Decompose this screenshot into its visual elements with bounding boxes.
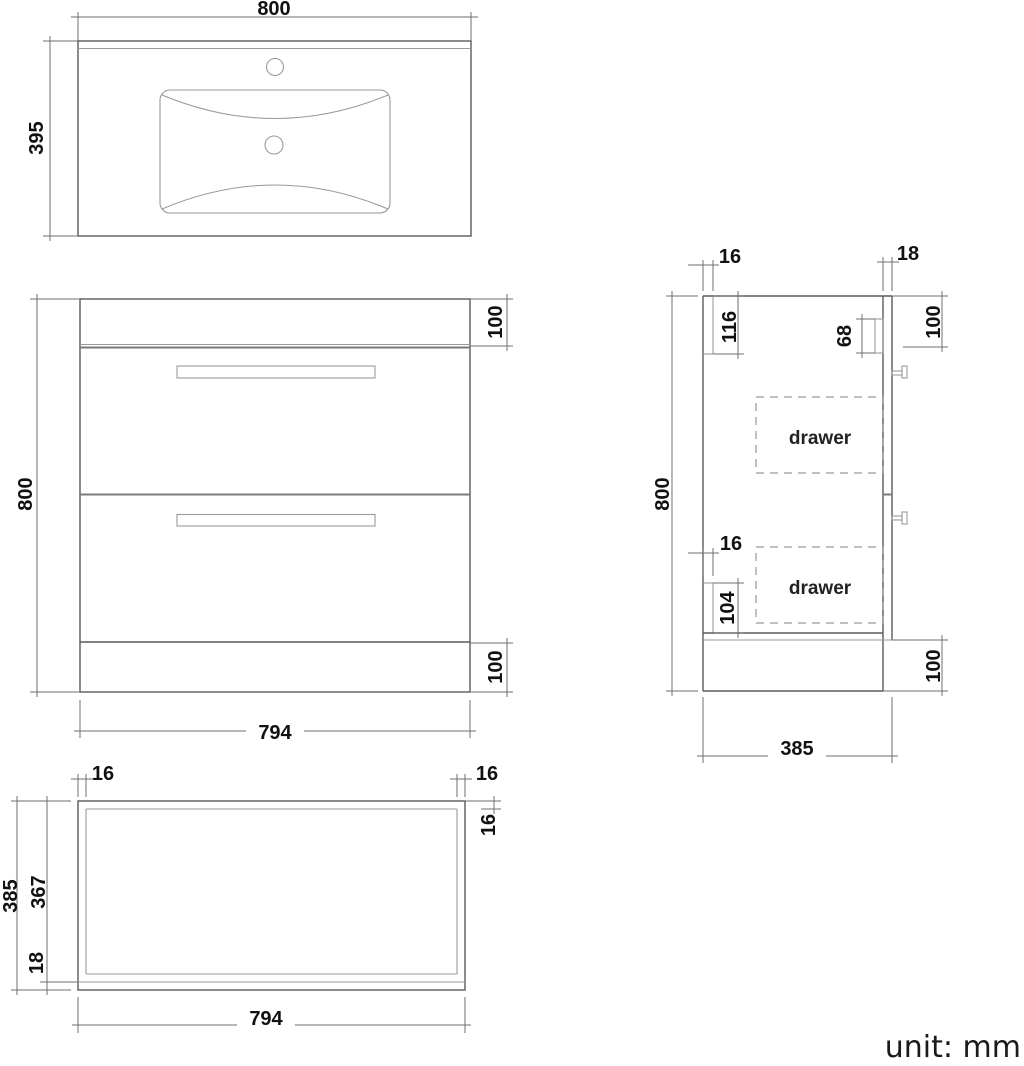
- basin-countertop-outline: [78, 41, 471, 236]
- dim-label-side-back-thickness: 16: [719, 246, 741, 268]
- dim-label-plan-inner-depth: 367: [28, 875, 50, 908]
- dim-side-back-rail-height: 116: [713, 291, 744, 359]
- basin-bowl-top-slope-curve: [162, 95, 388, 119]
- view-side: drawer drawer 16 18 116 68: [652, 243, 948, 763]
- dim-basin-width: 800: [71, 0, 478, 41]
- dim-plan-right-thickness: 16: [450, 763, 498, 797]
- technical-drawing-vanity-unit: 800 395 800 100: [0, 0, 1024, 1066]
- drawer-label-top: drawer: [789, 428, 852, 449]
- unit-note: unit: mm: [885, 1030, 1021, 1065]
- front-handle-bottom: [177, 515, 375, 527]
- dim-side-back-thickness: 16: [688, 246, 741, 291]
- dim-plan-back-thickness: 16: [465, 796, 501, 836]
- dim-side-mid-thickness: 16: [688, 533, 742, 576]
- dim-label-side-front-thickness: 18: [897, 243, 919, 265]
- dim-side-height: 800: [652, 291, 698, 696]
- dim-front-top-rail: 100: [470, 294, 513, 351]
- dim-label-front-height: 800: [15, 477, 37, 510]
- dim-front-height: 800: [15, 294, 80, 697]
- dim-side-bottom-rail-height: 104: [713, 578, 744, 638]
- dim-side-top-section: 100: [892, 291, 948, 352]
- dim-label-side-plinth: 100: [923, 649, 945, 682]
- drawer-label-bottom: drawer: [789, 578, 852, 599]
- dim-label-plan-depth: 385: [0, 879, 22, 912]
- dim-plan-front-thickness: 18: [26, 952, 48, 995]
- dim-label-side-height: 800: [652, 477, 674, 510]
- plan-outline: [78, 801, 465, 990]
- dim-label-plan-left-thickness: 16: [92, 763, 114, 785]
- front-handle-top: [177, 366, 375, 378]
- dim-front-plinth: 100: [470, 638, 513, 697]
- dim-side-plinth: 100: [883, 635, 948, 696]
- basin-bowl-bottom-slope-curve: [162, 185, 388, 209]
- dim-label-side-mid-thickness: 16: [720, 533, 742, 555]
- dim-side-front-thickness: 18: [877, 243, 919, 291]
- faucet-hole: [267, 59, 284, 76]
- dim-label-front-top-rail: 100: [485, 305, 507, 338]
- view-front: 800 100 100 794: [15, 294, 513, 744]
- dim-label-plan-width: 794: [249, 1008, 283, 1030]
- overflow-hole: [265, 136, 283, 154]
- dim-label-front-width: 794: [258, 722, 292, 744]
- dim-side-drawer-front-height: 68: [834, 314, 875, 358]
- side-drawer-front-rail: [875, 319, 883, 353]
- dim-plan-left-thickness: 16: [71, 763, 114, 797]
- view-plan: 16 16 16 385 367: [0, 763, 501, 1033]
- dim-label-side-depth: 385: [780, 738, 813, 760]
- view-basin-top: 800 395: [26, 0, 478, 241]
- dim-label-side-drawer-front-height: 68: [834, 325, 856, 347]
- dim-label-plan-right-thickness: 16: [476, 763, 498, 785]
- dim-label-side-back-rail-height: 116: [719, 311, 741, 343]
- basin-bowl-outline: [160, 90, 390, 213]
- side-handle-top: [892, 366, 907, 378]
- dim-front-width: 794: [74, 700, 476, 744]
- dim-label-plan-front-thickness: 18: [26, 952, 48, 974]
- dim-label-side-top-section: 100: [923, 305, 945, 338]
- dim-plan-width: 794: [72, 997, 471, 1033]
- dim-side-depth: 385: [697, 697, 898, 763]
- dim-label-basin-width: 800: [257, 0, 290, 20]
- dim-label-side-bottom-rail-height: 104: [717, 590, 739, 624]
- dim-basin-depth: 395: [26, 36, 78, 241]
- side-handle-bottom: [892, 512, 907, 524]
- dim-label-basin-depth: 395: [26, 121, 48, 154]
- dim-label-front-plinth: 100: [485, 650, 507, 683]
- dim-label-plan-back-thickness: 16: [478, 814, 500, 836]
